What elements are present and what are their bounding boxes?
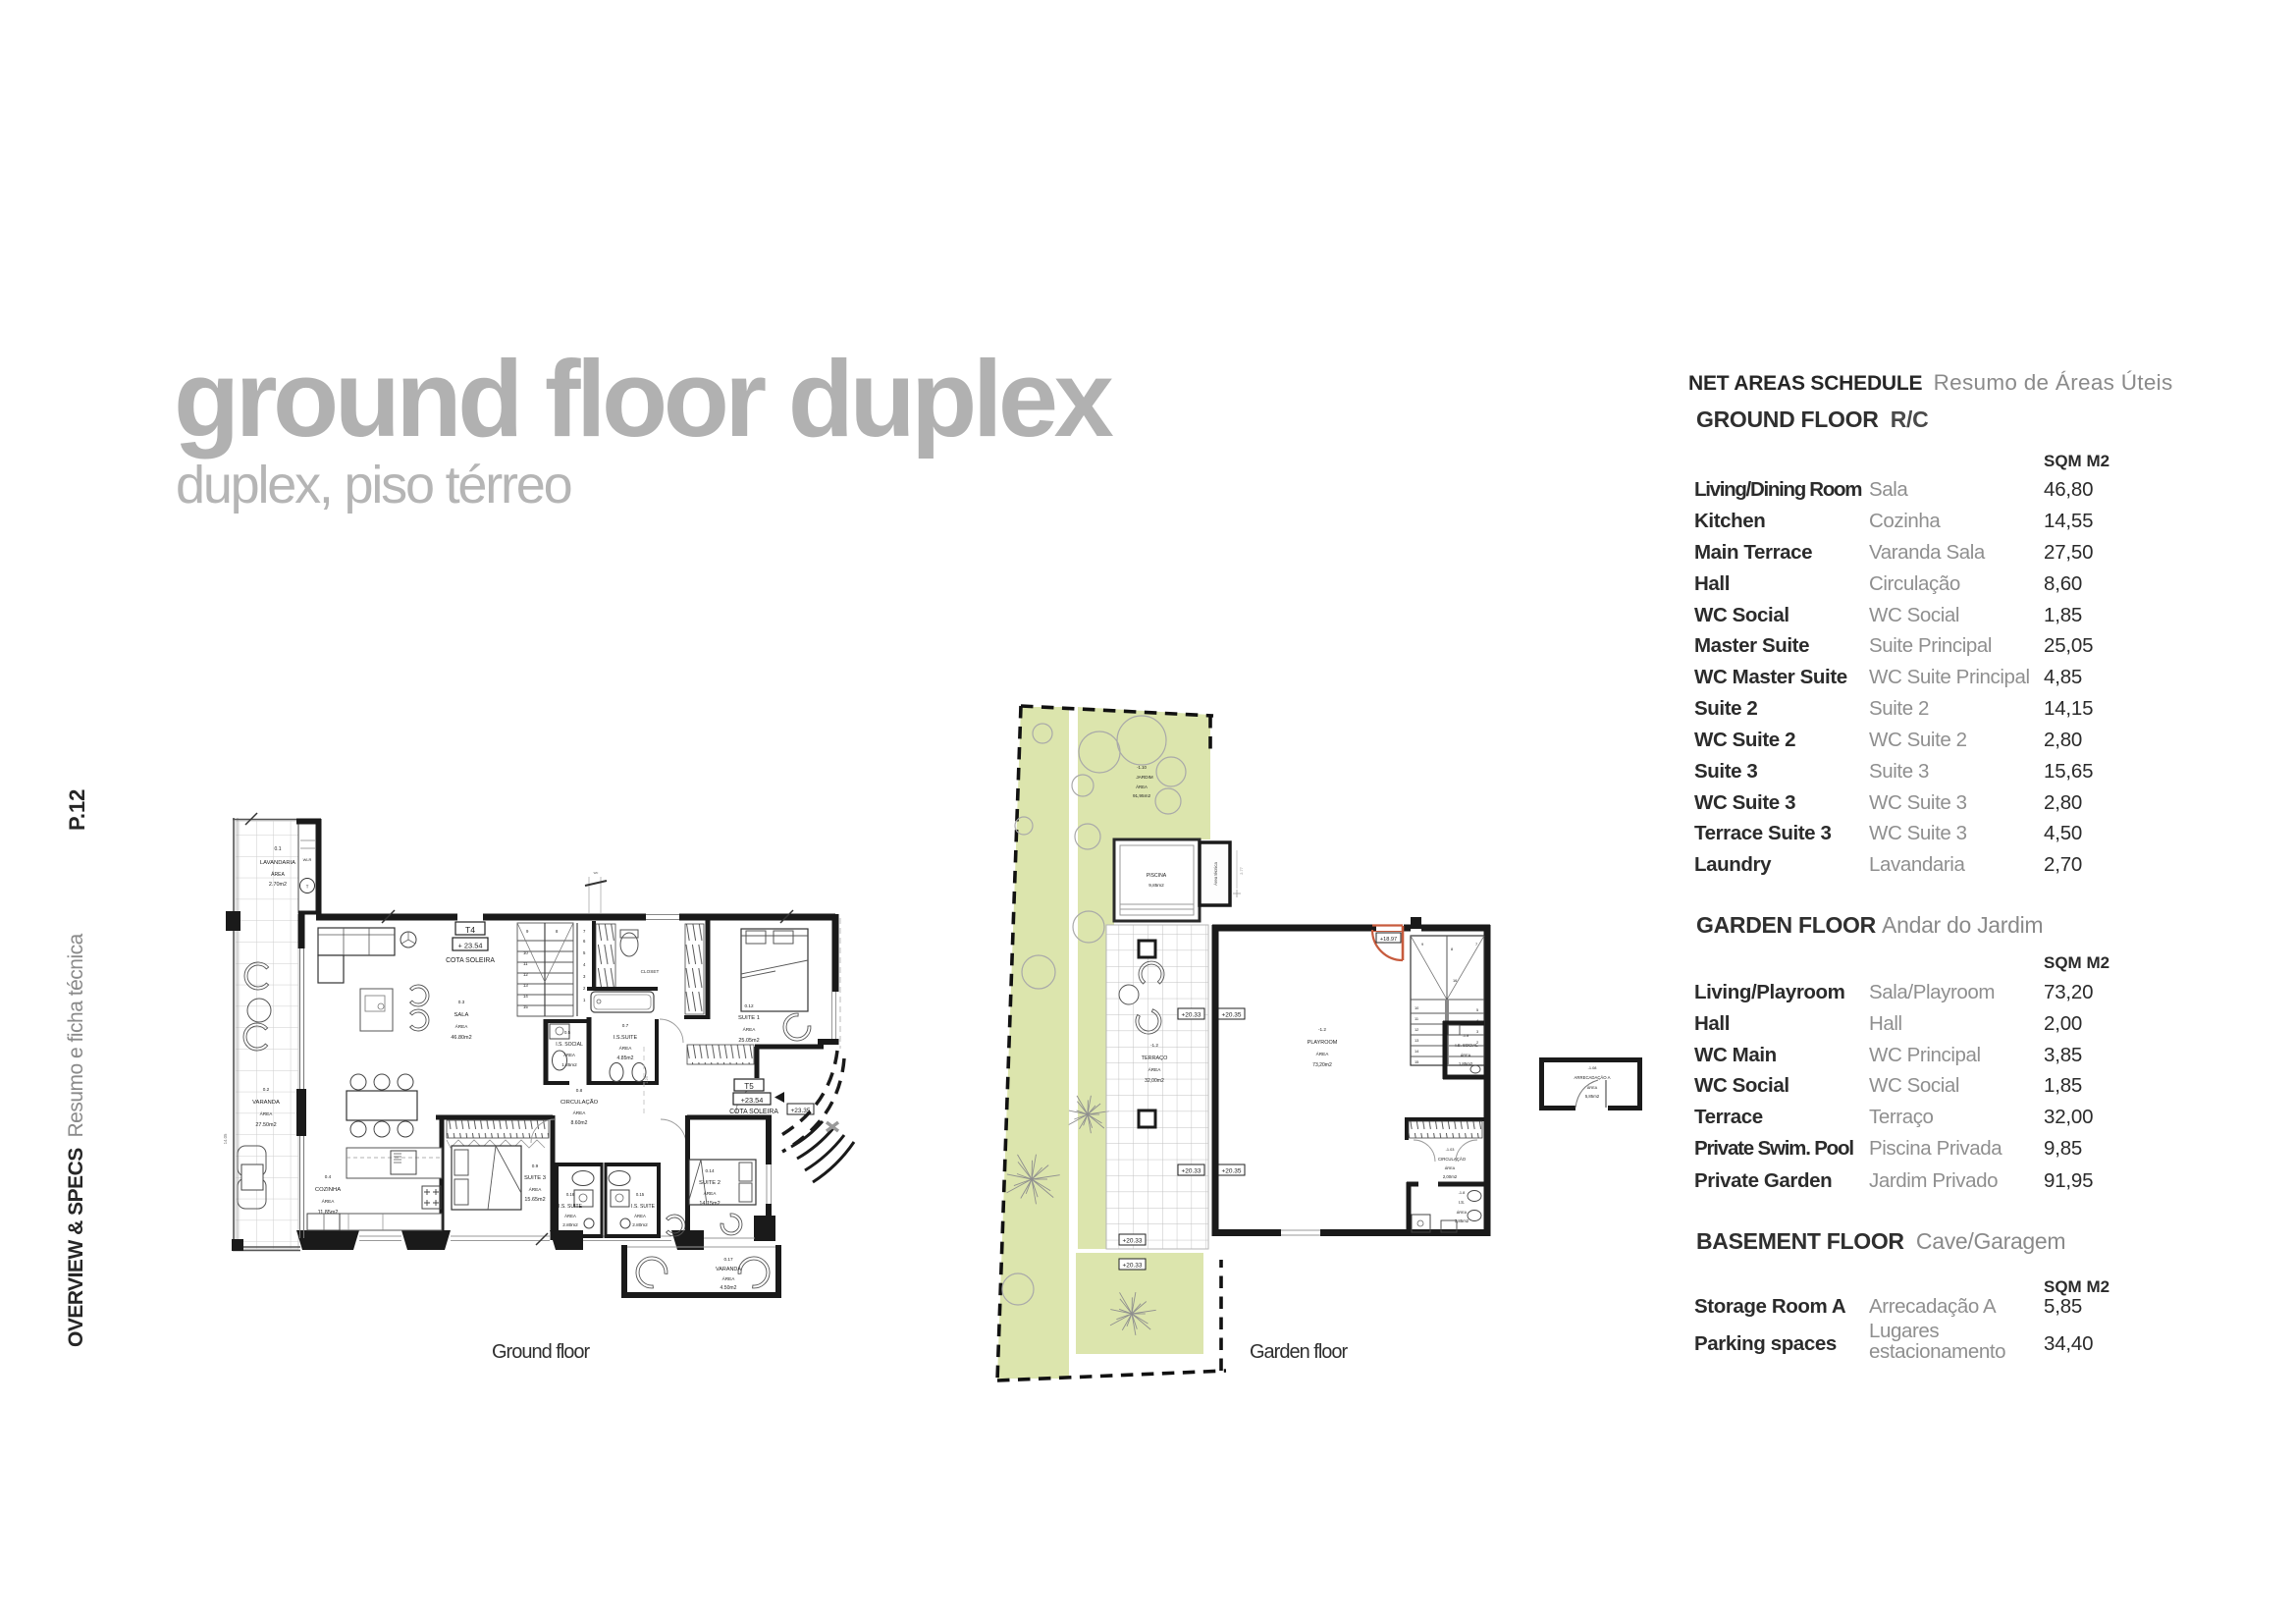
svg-text:+20.33: +20.33	[1182, 1012, 1201, 1019]
svg-text:13: 13	[523, 983, 528, 988]
svg-text:I.S. SUITE: I.S. SUITE	[631, 1204, 656, 1210]
svg-text:13: 13	[1415, 1038, 1418, 1043]
svg-text:5: 5	[1476, 1007, 1478, 1012]
svg-text:5: 5	[583, 950, 586, 955]
svg-text:ÁREA: ÁREA	[1316, 1051, 1330, 1056]
svg-text:ÁREA: ÁREA	[743, 1026, 757, 1032]
svg-text:Área técnica: Área técnica	[1213, 861, 1218, 885]
svg-text:4.85m2: 4.85m2	[617, 1056, 634, 1061]
svg-text:0.9: 0.9	[532, 1164, 539, 1168]
svg-text:ÁREA: ÁREA	[1445, 1165, 1456, 1170]
svg-text:0.4: 0.4	[325, 1174, 332, 1179]
svg-text:I.S. SOCIAL: I.S. SOCIAL	[1455, 1043, 1478, 1048]
svg-text:9,85m2: 9,85m2	[1148, 883, 1164, 888]
svg-text:9: 9	[526, 929, 529, 934]
svg-text:ÁREA: ÁREA	[634, 1214, 646, 1218]
svg-text:I.S. SUITE: I.S. SUITE	[559, 1204, 583, 1210]
svg-text:+18.97: +18.97	[1380, 937, 1397, 943]
svg-text:4.50m2: 4.50m2	[721, 1285, 737, 1291]
svg-text:VARANDA: VARANDA	[716, 1267, 741, 1272]
svg-text:ÁREA: ÁREA	[1587, 1085, 1598, 1090]
svg-text:wc: wc	[594, 870, 599, 875]
svg-text:2.80m2: 2.80m2	[632, 1222, 648, 1227]
svg-text:ÁREA: ÁREA	[260, 1110, 274, 1116]
svg-text:ÁREA: ÁREA	[1457, 1210, 1468, 1215]
svg-text:VARANDA: VARANDA	[252, 1100, 280, 1106]
svg-text:ÁREA: ÁREA	[529, 1186, 543, 1192]
svg-text:+20.33: +20.33	[1182, 1168, 1201, 1175]
svg-text:SUITE 1: SUITE 1	[738, 1015, 760, 1021]
svg-text:46.80m2: 46.80m2	[451, 1035, 471, 1041]
svg-text:ÁREA: ÁREA	[1136, 785, 1148, 789]
svg-text:3: 3	[1476, 1029, 1478, 1034]
svg-text:16: 16	[1453, 978, 1457, 983]
svg-text:9: 9	[1421, 942, 1423, 947]
svg-text:2: 2	[583, 986, 586, 991]
svg-text:2.80m2: 2.80m2	[562, 1222, 578, 1227]
svg-text:5,85m2: 5,85m2	[1585, 1094, 1600, 1099]
svg-text:0.15: 0.15	[636, 1192, 645, 1197]
svg-text:I.S.SUITE: I.S.SUITE	[614, 1035, 638, 1041]
svg-text:10: 10	[1415, 1005, 1419, 1010]
svg-text:15: 15	[1415, 1059, 1418, 1064]
svg-text:14: 14	[523, 994, 528, 999]
svg-text:14: 14	[1415, 1049, 1419, 1054]
svg-text:ARRECADAÇÃO A: ARRECADAÇÃO A	[1575, 1075, 1611, 1080]
svg-text:8: 8	[556, 929, 559, 934]
svg-text:I.S. SOCIAL: I.S. SOCIAL	[556, 1042, 583, 1048]
svg-text:8.60m2: 8.60m2	[571, 1120, 588, 1126]
svg-text:ÁREA: ÁREA	[1461, 1053, 1471, 1057]
svg-text:12: 12	[1415, 1027, 1418, 1032]
svg-text:ÁREA: ÁREA	[722, 1275, 736, 1281]
svg-text:11: 11	[1415, 1016, 1418, 1021]
svg-text:0.2: 0.2	[263, 1087, 270, 1092]
svg-text:PLAYROOM: PLAYROOM	[1308, 1040, 1338, 1046]
svg-text:TERRAÇO: TERRAÇO	[1142, 1056, 1168, 1061]
svg-text:CLOSET: CLOSET	[641, 969, 660, 974]
svg-text:PISCINA: PISCINA	[1147, 873, 1167, 879]
svg-text:LAVANDARIA: LAVANDARIA	[260, 860, 295, 866]
svg-text:ÁREA: ÁREA	[619, 1045, 633, 1051]
svg-text:CIRCULAÇÃO: CIRCULAÇÃO	[561, 1099, 599, 1106]
svg-text:+20.35: +20.35	[1222, 1168, 1242, 1175]
svg-text:-1.8: -1.8	[1463, 1033, 1469, 1038]
svg-text:14.15m2: 14.15m2	[699, 1201, 720, 1207]
svg-text:10: 10	[523, 950, 528, 955]
svg-text:1,85m2: 1,85m2	[1459, 1061, 1473, 1066]
svg-text:2,00m2: 2,00m2	[1443, 1174, 1458, 1179]
svg-text:3: 3	[583, 974, 586, 979]
svg-text:91,95m2: 91,95m2	[1133, 793, 1151, 798]
svg-text:+20.33: +20.33	[1123, 1263, 1143, 1270]
svg-text:COTA SOLEIRA: COTA SOLEIRA	[446, 957, 495, 964]
svg-text:ÁREA: ÁREA	[322, 1198, 336, 1204]
svg-text:JARDIM: JARDIM	[1136, 775, 1152, 780]
svg-text:+ 23.54: + 23.54	[458, 942, 483, 950]
svg-text:COZINHA: COZINHA	[315, 1187, 341, 1193]
svg-text:SALA: SALA	[454, 1012, 469, 1018]
svg-text:0.7: 0.7	[622, 1023, 629, 1028]
svg-text:2.70m2: 2.70m2	[269, 882, 287, 888]
svg-text:7: 7	[1475, 942, 1477, 947]
svg-text:0.8: 0.8	[576, 1088, 583, 1093]
svg-text:0.16: 0.16	[566, 1192, 575, 1197]
svg-text:WLR: WLR	[303, 857, 312, 862]
svg-text:-1.8: -1.8	[1459, 1190, 1466, 1195]
svg-text:1.85m2: 1.85m2	[561, 1062, 577, 1067]
svg-text:15: 15	[523, 1004, 528, 1009]
svg-text:12: 12	[523, 972, 528, 977]
svg-text:CIRCULAÇÃO: CIRCULAÇÃO	[1438, 1157, 1467, 1162]
svg-text:ÁREA: ÁREA	[573, 1110, 587, 1115]
svg-text:1.25: 1.25	[644, 1076, 649, 1084]
svg-text:I.S.: I.S.	[1459, 1200, 1465, 1205]
svg-text:0.12: 0.12	[744, 1003, 753, 1008]
svg-text:0.17: 0.17	[723, 1257, 732, 1262]
svg-text:+20.33: +20.33	[1123, 1238, 1143, 1245]
svg-text:7: 7	[583, 929, 586, 934]
svg-text:73,20m2: 73,20m2	[1312, 1062, 1332, 1068]
svg-text:4: 4	[583, 962, 586, 967]
svg-text:SUITE 3: SUITE 3	[524, 1175, 546, 1181]
svg-text:ÁREA: ÁREA	[704, 1190, 718, 1196]
svg-text:0.5: 0.5	[564, 1030, 571, 1035]
svg-text:1: 1	[583, 998, 586, 1002]
svg-text:8: 8	[1451, 947, 1453, 951]
svg-text:6: 6	[583, 939, 586, 944]
svg-text:32,00m2: 32,00m2	[1145, 1078, 1164, 1084]
svg-text:15.65m2: 15.65m2	[524, 1197, 545, 1203]
svg-text:0.14: 0.14	[705, 1168, 714, 1173]
svg-text:ÁREA: ÁREA	[271, 871, 285, 878]
svg-text:T4: T4	[465, 925, 475, 935]
svg-text:-1.10: -1.10	[1137, 765, 1147, 770]
svg-text:T5: T5	[744, 1082, 754, 1091]
svg-text:T: T	[306, 885, 309, 890]
svg-text:ÁREA: ÁREA	[564, 1214, 576, 1218]
svg-text:+20.35: +20.35	[1222, 1012, 1242, 1019]
svg-text:11: 11	[523, 961, 528, 966]
svg-text:ÁREA: ÁREA	[563, 1053, 575, 1057]
svg-text:ÁREA: ÁREA	[455, 1023, 469, 1029]
svg-text:0.1: 0.1	[274, 846, 281, 852]
svg-text:SUITE 2: SUITE 2	[699, 1180, 721, 1186]
svg-text:2.77: 2.77	[1239, 867, 1244, 875]
svg-text:25.05m2: 25.05m2	[738, 1038, 759, 1044]
svg-text:-1.08: -1.08	[1588, 1065, 1597, 1070]
svg-text:-1.2: -1.2	[1318, 1027, 1326, 1032]
svg-text:14.05: 14.05	[223, 1133, 228, 1144]
svg-text:-1.03: -1.03	[1446, 1147, 1455, 1152]
svg-text:ÁREA: ÁREA	[1148, 1066, 1162, 1072]
svg-text:COTA SOLEIRA: COTA SOLEIRA	[729, 1109, 778, 1115]
svg-text:0.3: 0.3	[458, 1000, 465, 1004]
svg-text:-1.2: -1.2	[1150, 1043, 1158, 1048]
svg-text:+23.54: +23.54	[741, 1096, 764, 1105]
svg-text:27.50m2: 27.50m2	[255, 1122, 276, 1128]
